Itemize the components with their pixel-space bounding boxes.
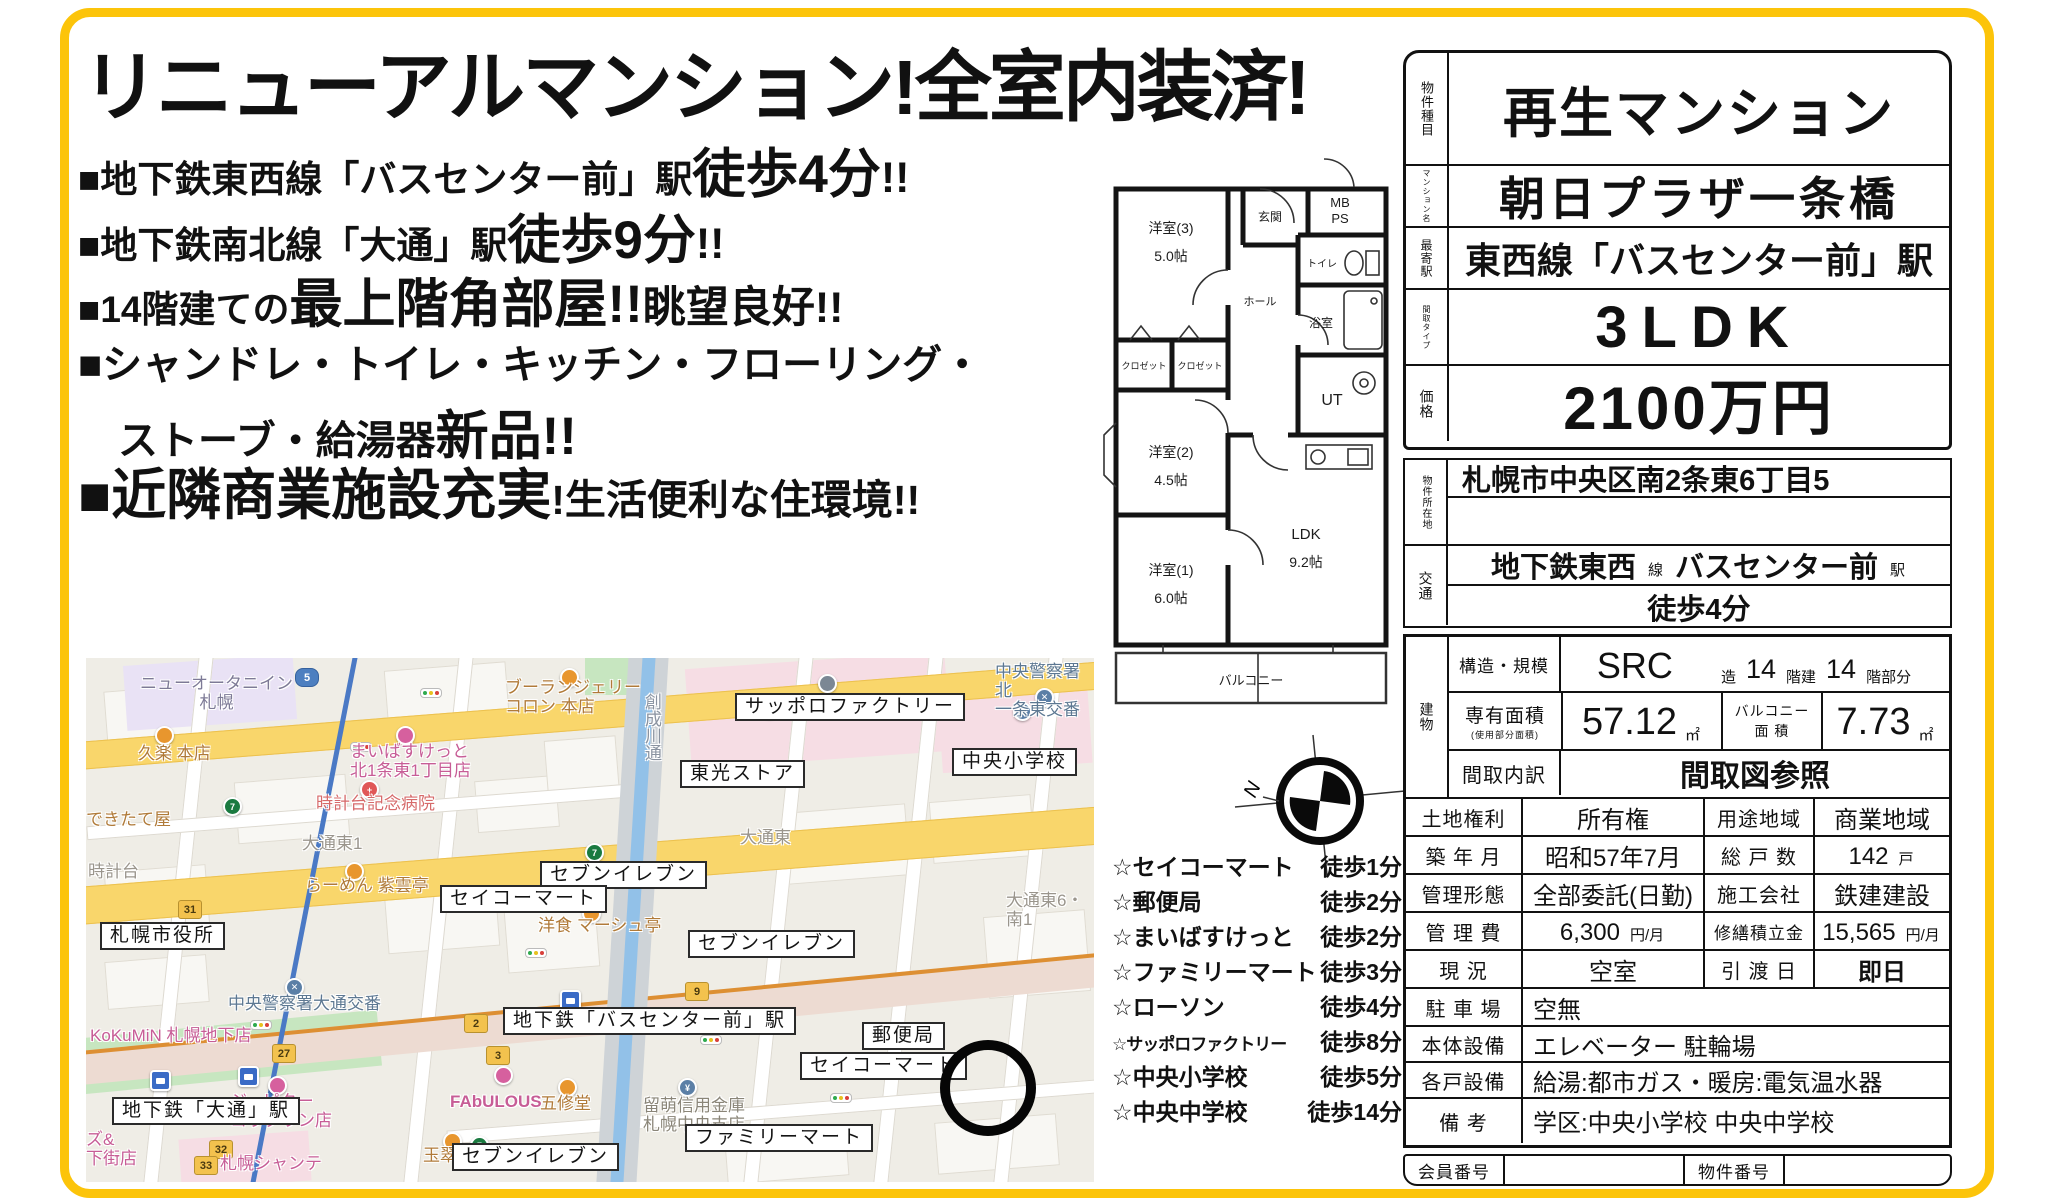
parking: 空無 (1523, 989, 1949, 1025)
floor-part: 14 (1826, 654, 1856, 685)
route-shield: 2 (464, 1014, 488, 1033)
walk-time: 徒歩4分 (1320, 988, 1402, 1022)
row-label: 現 況 (1406, 951, 1523, 987)
balcony-area: 7.73 (1837, 701, 1911, 744)
poi-name: ☆中央小学校 (1112, 1058, 1248, 1092)
subway-station-icon (238, 1066, 259, 1087)
bullet-line: ■地下鉄東西線「バスセンター前」駅徒歩4分!! (78, 132, 909, 208)
room-label: 洋室(3) (1148, 220, 1193, 236)
map-boxed-label: 地下鉄「大通」駅 (112, 1097, 300, 1125)
closet-label: クロゼット (1177, 360, 1222, 371)
map-label: 時計台 (88, 862, 139, 881)
row-header: マンション名 (1406, 166, 1449, 226)
room-label: LDK (1291, 526, 1320, 543)
row-label: 引 渡 日 (1705, 951, 1815, 987)
map-label: 大通東6・南1 (1006, 891, 1094, 929)
seven-eleven-marker-icon: 7 (223, 797, 242, 816)
map-boxed-label: ファミリーマート (685, 1124, 873, 1152)
list-item: ☆セイコーマート徒歩1分 (1112, 848, 1402, 877)
neighborhood-map: + ¥ 文 ✕ ✕ 7 7 7 5 31 27 2 3 32 33 9 ニューオ… (86, 658, 1094, 1182)
bullet-text: ■地下鉄南北線「大通」駅 (78, 225, 507, 266)
bullet-text: 眺望良好!! (643, 284, 844, 332)
total-units: 142 (1848, 843, 1888, 871)
bullet-emphasis: 徒歩4分 (692, 145, 880, 204)
spec-table-footer-box: 会員番号 物件番号 (1403, 1154, 1952, 1186)
spec-table-main-box: 物件種目 再生マンション マンション名 朝日プラザ一条橋 最寄駅 東西線「バスセ… (1403, 50, 1952, 450)
closet-label: クロゼット (1121, 360, 1166, 371)
bullet-line: ■近隣商業施設充実!生活便利な住環境!! (78, 450, 920, 530)
flyer-headline: リニューアルマンション!全室内装済! (82, 26, 1307, 137)
list-item: ☆ファミリーマート徒歩3分 (1112, 953, 1402, 982)
bullet-text: !! (696, 220, 725, 268)
room-label: PS (1331, 211, 1349, 226)
bullet-text: ■14階建ての (78, 289, 290, 330)
walking-distance-list: ☆セイコーマート徒歩1分 ☆郵便局徒歩2分 ☆まいばすけっと徒歩2分 ☆ファミリ… (1112, 848, 1402, 1128)
map-boxed-label: 地下鉄「バスセンター前」駅 (503, 1007, 796, 1035)
row-label: 専有面積 (1465, 701, 1545, 728)
handover: 即日 (1815, 951, 1949, 987)
nearest-station: 東西線「バスセンター前」駅 (1449, 228, 1949, 288)
row-label: 各戸設備 (1406, 1063, 1523, 1097)
row-label: バルコニー 面 積 (1723, 693, 1823, 749)
exclusive-area: 57.12 (1582, 701, 1677, 744)
list-item: ☆まいばすけっと徒歩2分 (1112, 918, 1402, 947)
list-item: ☆郵便局徒歩2分 (1112, 883, 1402, 912)
management: 全部委託(日勤) (1523, 875, 1705, 911)
repair-fund: 15,565 (1822, 919, 1895, 947)
map-label: 創成川通 (642, 693, 661, 761)
map-boxed-label: セブンイレブン (688, 930, 855, 958)
row-label: 管 理 費 (1406, 913, 1523, 949)
map-boxed-label: 東光ストア (680, 760, 805, 788)
builder: 鉄建建設 (1815, 875, 1949, 911)
notes: 学区:中央小学校 中央中学校 (1523, 1099, 1949, 1143)
poi-name: ☆中央中学校 (1112, 1093, 1248, 1127)
map-label: 中央警察署大通交番 (228, 994, 381, 1013)
room-label: トイレ (1307, 259, 1337, 270)
row-label: 土地権利 (1406, 799, 1523, 835)
room-label: 洋室(1) (1148, 562, 1193, 578)
walk-time: 徒歩8分 (1320, 1023, 1402, 1057)
map-label: らーめん 紫雲亭 (305, 876, 429, 895)
poi-name: ☆まいばすけっと (1112, 918, 1294, 952)
unit-label: 円/月 (1906, 924, 1940, 949)
room-label: 洋室(2) (1148, 444, 1193, 460)
bullet-text: ■シャンドレ・トイレ・キッチン・フローリング・ (78, 343, 982, 387)
spec-table-detail-box: 建物 構造・規模 SRC 造 14 階建 14 階部分 (1403, 634, 1952, 1148)
row-header: 最寄駅 (1406, 228, 1449, 288)
map-label: 時計台記念病院 (316, 794, 435, 813)
row-sublabel: (使用部分面積) (1471, 728, 1539, 741)
subway-station-icon (150, 1070, 171, 1091)
traffic-light-icon (250, 1020, 272, 1030)
map-boxed-label: セブンイレブン (452, 1143, 619, 1171)
layout-detail: 間取図参照 (1561, 751, 1949, 795)
floor-plan: 洋室(3) 5.0帖 クロゼット クロゼット 玄関 MB PS トイレ ホール … (1108, 175, 1395, 710)
map-boxed-label: セイコーマート (440, 885, 607, 913)
spec-table-address-box: 物件所在地 札幌市中央区南2条東6丁目5 交通 地下鉄東西 線 バスセンター前 … (1403, 458, 1952, 628)
map-label: ブーランジェリー コロン 本店 (505, 678, 641, 716)
bullet-text: !! (881, 154, 910, 202)
unit-label: 駅 (1890, 559, 1905, 584)
real-estate-flyer: リニューアルマンション!全室内装済! ■地下鉄東西線「バスセンター前」駅徒歩4分… (0, 0, 2056, 1198)
traffic-light-icon (830, 1093, 852, 1103)
unit-label: 戸 (1899, 848, 1914, 873)
map-label: まいばすけっと 北1条東1丁目店 (350, 742, 471, 780)
map-label: できたて屋 (86, 810, 171, 829)
map-boxed-label: 郵便局 (862, 1022, 945, 1050)
poi-name: ☆セイコーマート (1112, 848, 1294, 882)
bullet-line: ■シャンドレ・トイレ・キッチン・フローリング・ (78, 332, 982, 390)
poi-name: ☆ローソン (1112, 988, 1225, 1022)
map-boxed-label: 札幌市役所 (100, 922, 225, 950)
management-fee: 6,300 (1560, 919, 1620, 947)
row-header: 物件種目 (1406, 53, 1449, 164)
unit-label: 階部分 (1866, 666, 1911, 691)
row-label: 会員番号 (1405, 1156, 1505, 1184)
walk-time: 徒歩5分 (1320, 1058, 1402, 1092)
map-building (104, 954, 209, 1010)
map-label: 洋食 マーシュ亭 (538, 916, 661, 935)
row-label: 修繕積立金 (1705, 913, 1815, 949)
landmark-marker-icon (818, 674, 837, 693)
bullet-emphasis: 最上階角部屋!! (290, 275, 643, 334)
room-label: 浴室 (1309, 315, 1333, 330)
price: 2100万円 (1449, 366, 1949, 441)
floors: 14 (1746, 654, 1776, 685)
member-number-blank (1505, 1156, 1685, 1184)
bullet-emphasis: ■近隣商業施設充実 (78, 464, 551, 526)
map-label: FAbULOUS (450, 1092, 542, 1111)
restaurant-marker-icon (155, 726, 174, 745)
map-boxed-label: サッポロファクトリー (735, 693, 965, 721)
walk-time: 徒歩14分 (1307, 1093, 1402, 1127)
unit-label: ㎡ (1918, 724, 1933, 749)
map-label: 五修堂 (540, 1094, 591, 1113)
building-facilities: エレベーター 駐輪場 (1523, 1027, 1949, 1061)
zoning: 商業地域 (1815, 799, 1949, 835)
route-shield: 5 (295, 668, 319, 687)
property-number-blank (1785, 1156, 1950, 1184)
row-label: 駐 車 場 (1406, 989, 1523, 1025)
compass-north-label: N (1240, 778, 1266, 801)
built-date: 昭和57年7月 (1523, 837, 1705, 873)
route-shield: 33 (194, 1156, 218, 1175)
map-label: 中央警察署北 一条東交番 (995, 662, 1094, 719)
room-size: 9.2帖 (1289, 554, 1322, 570)
poi-name: ☆サッポロファクトリー (1112, 1030, 1286, 1055)
route-shield: 3 (486, 1046, 510, 1065)
walk-time: 徒歩1分 (1320, 848, 1402, 882)
traffic-light-icon (700, 1035, 722, 1045)
seven-eleven-marker-icon: 7 (585, 843, 604, 862)
route-shield: 9 (685, 982, 709, 1001)
map-label: 札幌シャンテ (220, 1154, 322, 1173)
poi-name: ☆郵便局 (1112, 883, 1202, 917)
row-header: 間取タイプ (1406, 290, 1449, 364)
row-label: 管理形態 (1406, 875, 1523, 911)
room-label: 玄関 (1258, 209, 1282, 224)
address: 札幌市中央区南2条東6丁目5 (1448, 460, 1950, 498)
bullet-line: ■14階建ての最上階角部屋!!眺望良好!! (78, 262, 843, 338)
room-label: ホール (1244, 295, 1277, 308)
room-size: 5.0帖 (1154, 248, 1187, 264)
row-label: 備 考 (1406, 1099, 1523, 1143)
walk-time: 徒歩2分 (1320, 883, 1402, 917)
access-line: 地下鉄東西 (1491, 544, 1636, 586)
unit-label: 線 (1648, 559, 1663, 584)
traffic-light-icon (420, 688, 442, 698)
property-location-circle (940, 1040, 1036, 1136)
map-label: 久楽 本店 (138, 744, 211, 763)
row-label: 本体設備 (1406, 1027, 1523, 1061)
map-label: 大通東 (740, 828, 791, 847)
map-label: KoKuMiN 札幌地下店 (90, 1026, 252, 1045)
structure: SRC (1597, 645, 1673, 687)
bank-marker-icon: ¥ (678, 1078, 697, 1097)
map-label: 大通東1 (302, 834, 362, 853)
row-label: 施工会社 (1705, 875, 1815, 911)
address-blank (1448, 498, 1950, 544)
unit-label: 造 (1721, 666, 1736, 691)
layout-type: 3LDK (1449, 290, 1949, 364)
row-label: 総 戸 数 (1705, 837, 1815, 873)
unit-facilities: 給湯:都市ガス・暖房:電気温水器 (1523, 1063, 1949, 1097)
access-line-row: 地下鉄東西 線 バスセンター前 駅 (1448, 546, 1950, 586)
land-right: 所有権 (1523, 799, 1705, 835)
list-item: ☆ローソン徒歩4分 (1112, 988, 1402, 1017)
row-label: 間取内訳 (1449, 751, 1561, 795)
row-header: 価格 (1406, 366, 1449, 441)
row-header: 物件所在地 (1405, 460, 1448, 544)
access-walk: 徒歩4分 (1448, 586, 1950, 628)
room-label: MB (1330, 195, 1350, 210)
map-label: ニューオータニイン 札幌 (140, 674, 293, 712)
current-status: 空室 (1523, 951, 1705, 987)
row-label: 用途地域 (1705, 799, 1815, 835)
unit-label: 円/月 (1630, 924, 1664, 949)
row-header: 交通 (1405, 546, 1448, 625)
balcony-label: バルコニー (1219, 673, 1284, 688)
route-shield: 31 (178, 900, 202, 919)
room-label: UT (1321, 392, 1343, 409)
store-marker-icon (494, 1066, 513, 1085)
walk-time: 徒歩2分 (1320, 918, 1402, 952)
unit-label: 階建 (1786, 666, 1816, 691)
list-item: ☆中央小学校徒歩5分 (1112, 1058, 1402, 1087)
route-shield: 27 (272, 1044, 296, 1063)
access-station: バスセンター前 (1675, 544, 1878, 586)
row-label: 構造・規模 (1449, 637, 1561, 691)
row-header: 建物 (1406, 637, 1449, 797)
map-boxed-label: 中央小学校 (952, 748, 1077, 776)
structure-value-row: SRC 造 14 階建 14 階部分 (1561, 637, 1949, 691)
poi-name: ☆ファミリーマート (1112, 953, 1317, 987)
walk-time: 徒歩3分 (1320, 953, 1402, 987)
property-type: 再生マンション (1449, 53, 1949, 164)
traffic-light-icon (525, 948, 547, 958)
room-size: 6.0帖 (1154, 590, 1187, 606)
bullet-text: !生活便利な住環境!! (551, 477, 920, 523)
unit-label: ㎡ (1685, 724, 1700, 749)
row-label: 物件番号 (1685, 1156, 1785, 1184)
row-label: 築 年 月 (1406, 837, 1523, 873)
list-item: ☆中央中学校徒歩14分 (1112, 1093, 1402, 1122)
building-name: 朝日プラザ一条橋 (1449, 166, 1949, 226)
bullet-text: ■地下鉄東西線「バスセンター前」駅 (78, 159, 692, 200)
room-size: 4.5帖 (1154, 472, 1187, 488)
list-item: ☆サッポロファクトリー徒歩8分 (1112, 1023, 1402, 1052)
map-label: ズ& 下街店 (86, 1130, 137, 1168)
